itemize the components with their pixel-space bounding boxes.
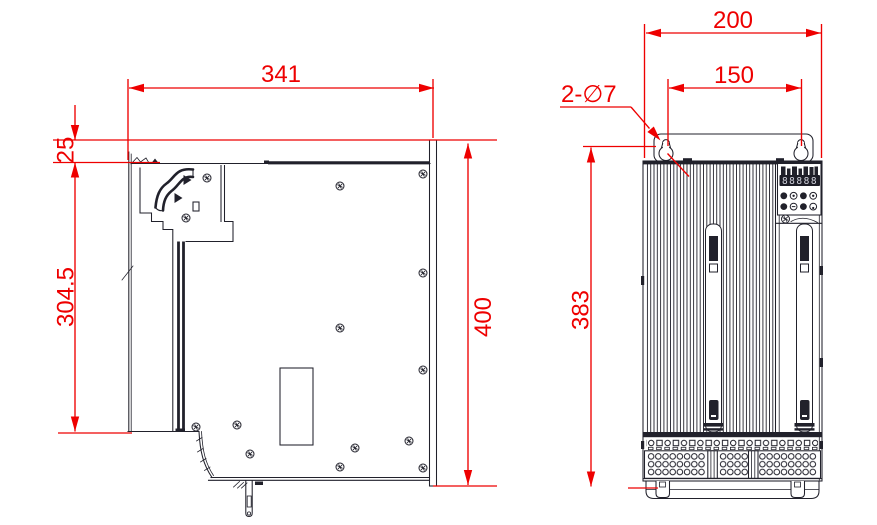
base-feet: [646, 481, 819, 499]
front-plate-edge: [430, 140, 437, 486]
dimension-drawing-page: 88888: [0, 0, 877, 525]
mounting-bracket-detail: [140, 159, 233, 242]
side-view: [122, 140, 437, 517]
connector-slot-right: [795, 224, 815, 432]
dimension-400: 400: [464, 144, 497, 486]
dimension-drawing: 88888: [0, 0, 877, 525]
screw-icons: [182, 170, 427, 472]
dimension-304-5: 304.5: [53, 163, 80, 432]
dimension-200: 200: [646, 7, 821, 37]
dimension-304-5-label: 304.5: [53, 267, 80, 327]
dimension-383: 383: [568, 148, 596, 487]
connector-slot-left: [704, 224, 724, 432]
callout-2xd7-label: 2-∅7: [561, 81, 617, 108]
front-view: 88888: [641, 134, 823, 499]
nameplate-cutout: [280, 368, 313, 445]
bottom-cove: [197, 432, 214, 478]
dimension-400-label: 400: [470, 297, 497, 337]
mounting-plate: [654, 134, 813, 162]
dimension-25-label: 25: [53, 137, 80, 164]
cable-clamp-tab: [234, 481, 264, 517]
dimension-383-label: 383: [568, 290, 595, 330]
dimension-341-label: 341: [261, 61, 301, 88]
dimension-200-label: 200: [713, 7, 753, 34]
dimension-341: 341: [129, 61, 434, 92]
dimension-150-label: 150: [714, 62, 754, 89]
keypad-panel: 88888: [776, 164, 823, 224]
dimension-150: 150: [669, 62, 801, 92]
bracket-column: [122, 230, 199, 433]
terminal-block: [643, 432, 822, 479]
display-value: 88888: [782, 176, 818, 187]
